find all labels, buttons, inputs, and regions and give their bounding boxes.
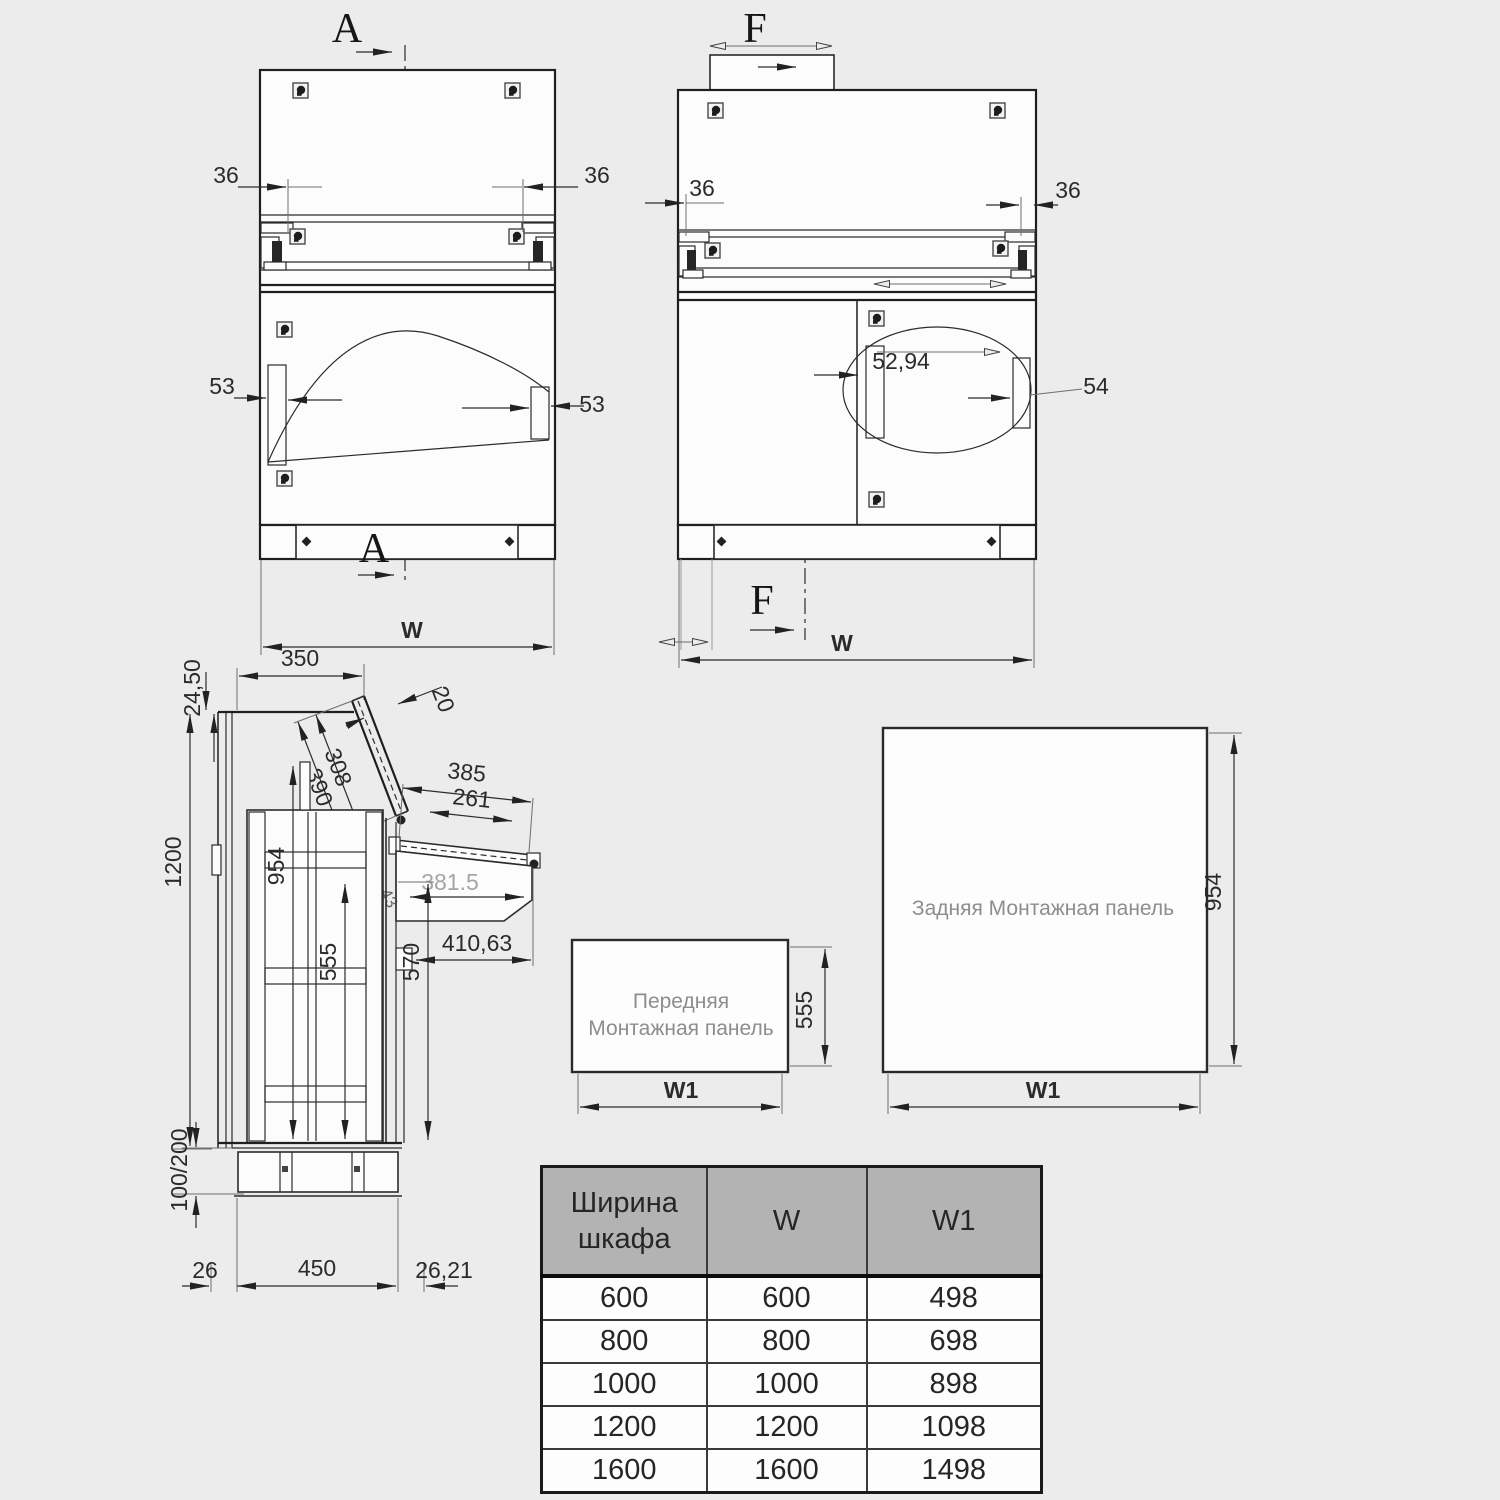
table-row: 600 600 498 <box>542 1276 1042 1320</box>
dim-1200: 1200 <box>160 836 186 887</box>
dim-24-50: 24,50 <box>179 659 205 717</box>
dim-450: 450 <box>298 1255 336 1281</box>
dim-555: 555 <box>315 943 341 981</box>
cabinet-outline <box>260 70 555 525</box>
panel-title-line2: Монтажная панель <box>588 1017 773 1040</box>
dim-36-right: 36 <box>584 162 610 188</box>
section-label-f-bottom: F <box>750 578 773 624</box>
col-header-w1: W1 <box>867 1167 1042 1277</box>
cell-w1: 1498 <box>867 1449 1042 1493</box>
cell-w: 800 <box>707 1320 867 1363</box>
col-header-cabinet-width: Ширина шкафа <box>542 1167 707 1277</box>
dim-54: 54 <box>1083 373 1109 399</box>
front-view: A 36 36 <box>209 6 610 655</box>
panel-title: Задняя Монтажная панель <box>912 897 1174 920</box>
cam-lock-icon <box>277 471 292 486</box>
section-label-a-bottom: A <box>359 526 390 572</box>
dim-36-left: 36 <box>213 162 239 188</box>
dim-52-94: 52,94 <box>872 348 930 374</box>
size-table: Ширина шкафа W W1 600 600 498 800 800 69… <box>540 1165 1040 1494</box>
dim-w: W <box>831 630 853 656</box>
dim-954: 954 <box>1200 873 1226 912</box>
cell-width: 600 <box>542 1276 707 1320</box>
cell-width: 800 <box>542 1320 707 1363</box>
dim-26: 26 <box>192 1257 218 1283</box>
table-row: 1000 1000 898 <box>542 1363 1042 1406</box>
cell-w1: 498 <box>867 1276 1042 1320</box>
dim-w1: W1 <box>664 1077 699 1103</box>
cable-entry-block <box>710 55 834 90</box>
plinth <box>238 1152 398 1192</box>
dim-36-right: 36 <box>1055 177 1081 203</box>
dim-570: 570 <box>398 943 424 981</box>
dim-261: 261 <box>451 783 492 813</box>
dim-53-left: 53 <box>209 373 235 399</box>
cam-lock-icon <box>869 492 884 507</box>
table-row: 1600 1600 1498 <box>542 1449 1042 1493</box>
cell-width: 1600 <box>542 1449 707 1493</box>
technical-drawing-page: A 36 36 <box>0 0 1500 1500</box>
side-view: 24,50 350 20 308 390 <box>160 645 540 1292</box>
table-row: 800 800 698 <box>542 1320 1042 1363</box>
sloped-lid <box>352 696 408 825</box>
dim-385: 385 <box>446 757 487 787</box>
cam-lock-icon <box>277 322 292 337</box>
dim-954: 954 <box>263 847 289 886</box>
cell-width: 1000 <box>542 1363 707 1406</box>
cam-lock-icon <box>993 241 1008 256</box>
dim-w: W <box>401 617 423 643</box>
dim-555: 555 <box>791 991 817 1029</box>
cell-w: 1600 <box>707 1449 867 1493</box>
cell-w1: 1098 <box>867 1406 1042 1449</box>
cam-lock-icon <box>505 83 520 98</box>
cam-lock-icon <box>990 103 1005 118</box>
cell-w: 1000 <box>707 1363 867 1406</box>
cam-lock-icon <box>705 243 720 258</box>
dim-53-right: 53 <box>579 391 605 417</box>
col-header-w: W <box>707 1167 867 1277</box>
cam-lock-icon <box>290 229 305 244</box>
rear-mounting-panel: Задняя Монтажная панель 954 W1 <box>883 728 1242 1114</box>
cam-lock-icon <box>869 311 884 326</box>
section-label-f-top: F <box>743 6 766 52</box>
cam-lock-icon <box>509 229 524 244</box>
door-hinge <box>212 845 221 875</box>
cell-w1: 698 <box>867 1320 1042 1363</box>
cell-w: 1200 <box>707 1406 867 1449</box>
cell-width: 1200 <box>542 1406 707 1449</box>
cell-w: 600 <box>707 1276 867 1320</box>
cam-lock-icon <box>293 83 308 98</box>
dim-36-left: 36 <box>689 175 715 201</box>
cam-lock-icon <box>708 103 723 118</box>
dim-350: 350 <box>281 645 319 671</box>
panel-title-line1: Передняя <box>633 990 729 1013</box>
dim-w1: W1 <box>1026 1077 1061 1103</box>
rear-view: F 36 36 <box>645 6 1109 668</box>
section-label-a-top: A <box>332 6 363 52</box>
cell-w1: 898 <box>867 1363 1042 1406</box>
front-mounting-panel: Передняя Монтажная панель 555 W1 <box>572 940 832 1114</box>
dim-410-63: 410,63 <box>442 930 512 956</box>
dim-100-200: 100/200 <box>166 1128 192 1211</box>
dim-20: 20 <box>427 683 460 716</box>
dim-26-21: 26,21 <box>415 1257 473 1283</box>
table-row: 1200 1200 1098 <box>542 1406 1042 1449</box>
